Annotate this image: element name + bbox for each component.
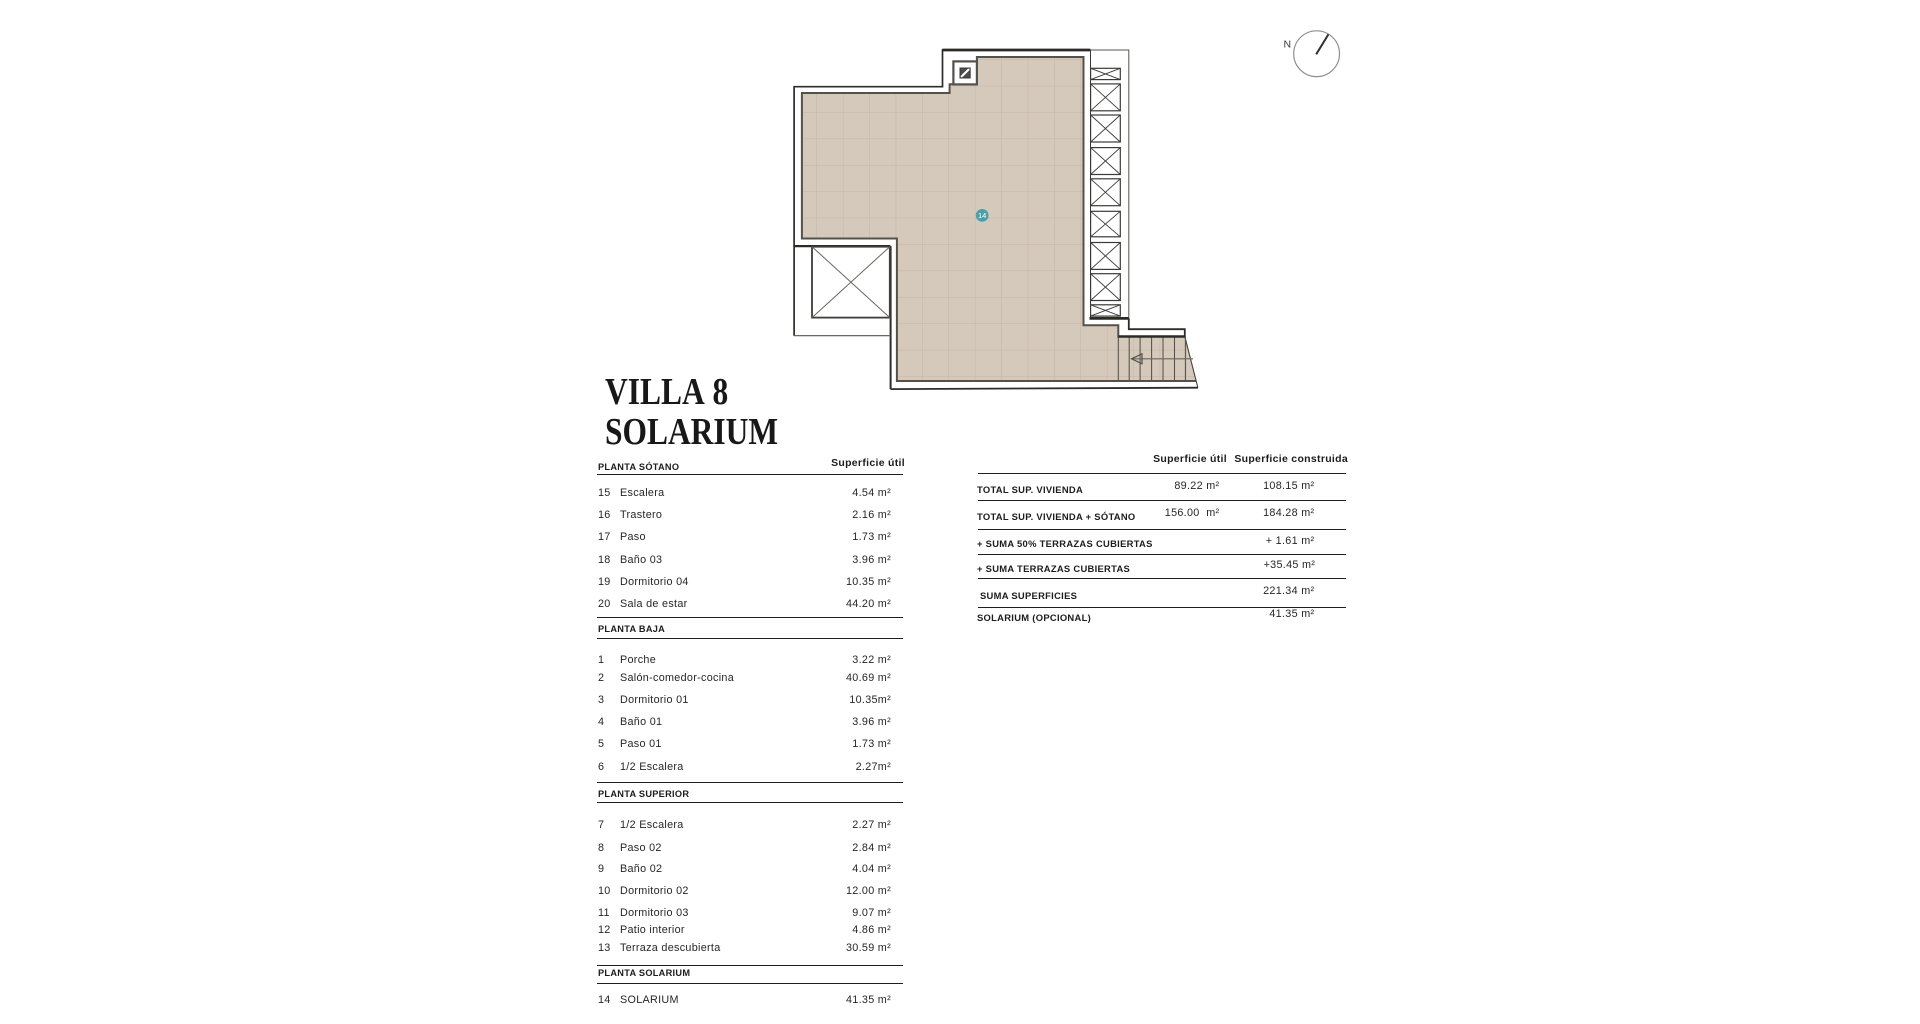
svg-text:N: N xyxy=(1284,39,1292,51)
svg-text:14: 14 xyxy=(978,211,986,220)
